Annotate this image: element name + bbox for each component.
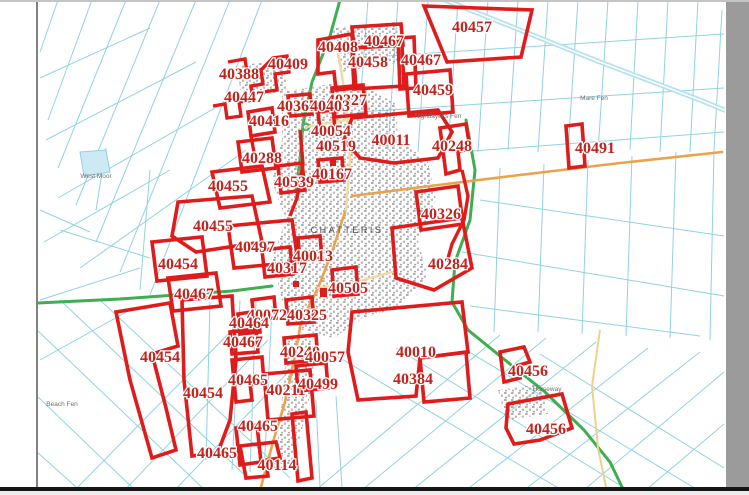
ditch-line bbox=[70, 322, 240, 495]
ditch-line bbox=[418, 0, 428, 152]
parcel-label: 40454 bbox=[183, 385, 223, 402]
ditch-line bbox=[46, 62, 196, 140]
place-name-label: Horseway bbox=[533, 386, 563, 393]
parcel-label: 40455 bbox=[193, 218, 233, 235]
parcel-label: 40465 bbox=[228, 372, 268, 389]
parcel-label: 40458 bbox=[348, 54, 388, 71]
parcel-label: 40317 bbox=[267, 260, 307, 277]
window-top-edge bbox=[0, 0, 749, 2]
parcel-label: 40167 bbox=[312, 166, 352, 183]
parcel-label: 40519 bbox=[316, 138, 356, 155]
ditch-line bbox=[480, 200, 724, 236]
parcel-map-canvas[interactable]: 4045740467404584040840467404594032740409… bbox=[0, 0, 749, 495]
parcel-label: 40491 bbox=[575, 140, 615, 157]
screenshot-root: 4045740467404584040840467404594032740409… bbox=[0, 0, 749, 495]
parcel-label: 40248 bbox=[432, 138, 472, 155]
place-name-label: Mare Fen bbox=[580, 95, 608, 102]
parcel-label: 40467 bbox=[174, 286, 214, 303]
ditch-line bbox=[206, 302, 210, 460]
parcel-label: 40408 bbox=[318, 39, 358, 56]
parcel-label: 40457 bbox=[452, 19, 492, 36]
ditch-line bbox=[538, 164, 544, 332]
ditch-line bbox=[538, 0, 548, 152]
parcel-label: 40326 bbox=[421, 206, 461, 223]
parcel-label: 40465 bbox=[197, 445, 237, 462]
parcel-label: 40464 bbox=[229, 315, 269, 332]
window-bottom-strip bbox=[0, 491, 749, 495]
parcel-label: 40409 bbox=[268, 56, 308, 73]
parcel-label: 40456 bbox=[508, 363, 548, 380]
ditch-line bbox=[670, 152, 676, 338]
parcel-label: 40467 bbox=[223, 334, 263, 351]
ditch-line bbox=[40, 268, 140, 300]
ditch-line bbox=[316, 400, 320, 487]
parcel-label: 40384 bbox=[393, 371, 433, 388]
parcel-label: 40011 bbox=[371, 132, 410, 149]
ditch-line bbox=[58, 0, 126, 168]
ditch-line bbox=[60, 230, 150, 258]
parcel-label: 40539 bbox=[274, 174, 314, 191]
parcel-label: 40010 bbox=[396, 344, 436, 361]
parcel-label: 40388 bbox=[219, 66, 259, 83]
ditch-line bbox=[48, 0, 92, 120]
place-name-label: Beach Fen bbox=[46, 401, 78, 408]
place-name-label: Nightlayer's Fen bbox=[415, 113, 462, 120]
ditch-line bbox=[40, 0, 58, 52]
ditch-line bbox=[714, 10, 722, 150]
ditch-line bbox=[40, 210, 90, 232]
parcel-label: 40403 bbox=[310, 98, 350, 115]
ditch-line bbox=[582, 160, 588, 334]
ditch-line bbox=[140, 170, 150, 290]
parcel-label: 40288 bbox=[242, 150, 282, 167]
parcel-label: 40467 bbox=[401, 52, 441, 69]
ditch-line bbox=[37, 396, 140, 495]
map-page[interactable]: 4045740467404584040840467404594032740409… bbox=[0, 0, 726, 487]
parcel-label: 40505 bbox=[328, 280, 368, 297]
parcel-label: 40284 bbox=[428, 256, 468, 273]
ditch-line bbox=[598, 0, 608, 152]
parcel-label: 40499 bbox=[298, 376, 338, 393]
ditch-line bbox=[462, 252, 724, 296]
place-name-label: West Moor bbox=[80, 173, 112, 180]
red-marker bbox=[293, 281, 299, 287]
town-name-label: CHATTERIS bbox=[311, 225, 384, 235]
ditch-line bbox=[568, 0, 578, 150]
parcel-label: 40447 bbox=[224, 89, 264, 106]
ditch-line bbox=[336, 396, 342, 487]
parcel-label: 40416 bbox=[249, 113, 289, 130]
ditch-line bbox=[660, 0, 668, 152]
ditch-line bbox=[494, 168, 500, 332]
parcel-label: 40456 bbox=[526, 421, 566, 438]
viewer-gutter bbox=[726, 0, 749, 487]
ditch-line bbox=[508, 0, 518, 150]
parcel-label: 40465 bbox=[238, 418, 278, 435]
ditch-line bbox=[690, 0, 698, 152]
ditch-line bbox=[710, 150, 714, 340]
ditch-line bbox=[40, 28, 150, 78]
ditch-line bbox=[470, 306, 700, 336]
parcel-label: 40454 bbox=[140, 349, 180, 366]
parcel-outline bbox=[116, 303, 178, 458]
red-marker bbox=[320, 288, 327, 297]
ditch-line bbox=[626, 156, 632, 336]
parcel-label: 40459 bbox=[413, 82, 453, 99]
parcel-label: 40325 bbox=[287, 307, 327, 324]
parcel-label: 40454 bbox=[158, 256, 198, 273]
parcel-label: 40497 bbox=[235, 239, 275, 256]
parcel-label: 40057 bbox=[305, 349, 345, 366]
parcel-label: 40455 bbox=[208, 178, 248, 195]
parcel-label: 40114 bbox=[257, 457, 296, 474]
parcel-label: 40467 bbox=[364, 33, 404, 50]
ditch-line bbox=[640, 424, 724, 495]
